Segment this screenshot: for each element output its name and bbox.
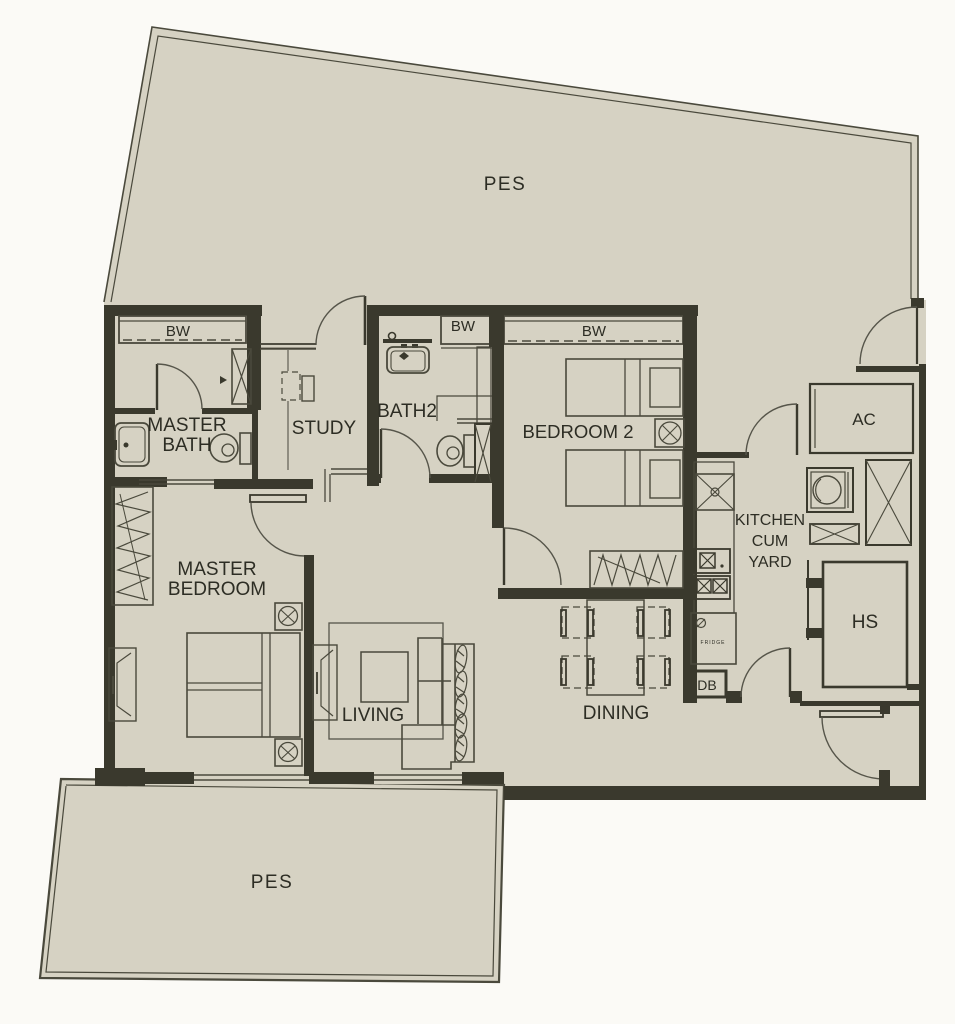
svg-text:MASTER: MASTER — [177, 559, 256, 580]
svg-text:DB: DB — [697, 677, 716, 693]
svg-text:PES: PES — [251, 872, 294, 893]
svg-text:STUDY: STUDY — [292, 418, 357, 439]
svg-text:BW: BW — [582, 323, 607, 340]
svg-text:BATH: BATH — [162, 435, 211, 456]
svg-text:YARD: YARD — [748, 554, 791, 571]
svg-text:BEDROOM: BEDROOM — [168, 579, 266, 600]
svg-text:AC: AC — [852, 410, 876, 429]
svg-text:DINING: DINING — [583, 703, 650, 724]
svg-text:BATH2: BATH2 — [377, 401, 437, 422]
svg-text:CUM: CUM — [752, 533, 788, 550]
svg-text:HS: HS — [852, 612, 878, 633]
svg-text:BW: BW — [451, 318, 476, 335]
svg-text:LIVING: LIVING — [342, 705, 404, 726]
svg-text:FRIDGE: FRIDGE — [701, 640, 726, 646]
svg-text:KITCHEN: KITCHEN — [735, 512, 805, 529]
svg-text:BW: BW — [166, 323, 191, 340]
svg-text:BEDROOM 2: BEDROOM 2 — [522, 421, 633, 442]
svg-text:MASTER: MASTER — [147, 415, 226, 436]
svg-text:PES: PES — [484, 174, 527, 195]
